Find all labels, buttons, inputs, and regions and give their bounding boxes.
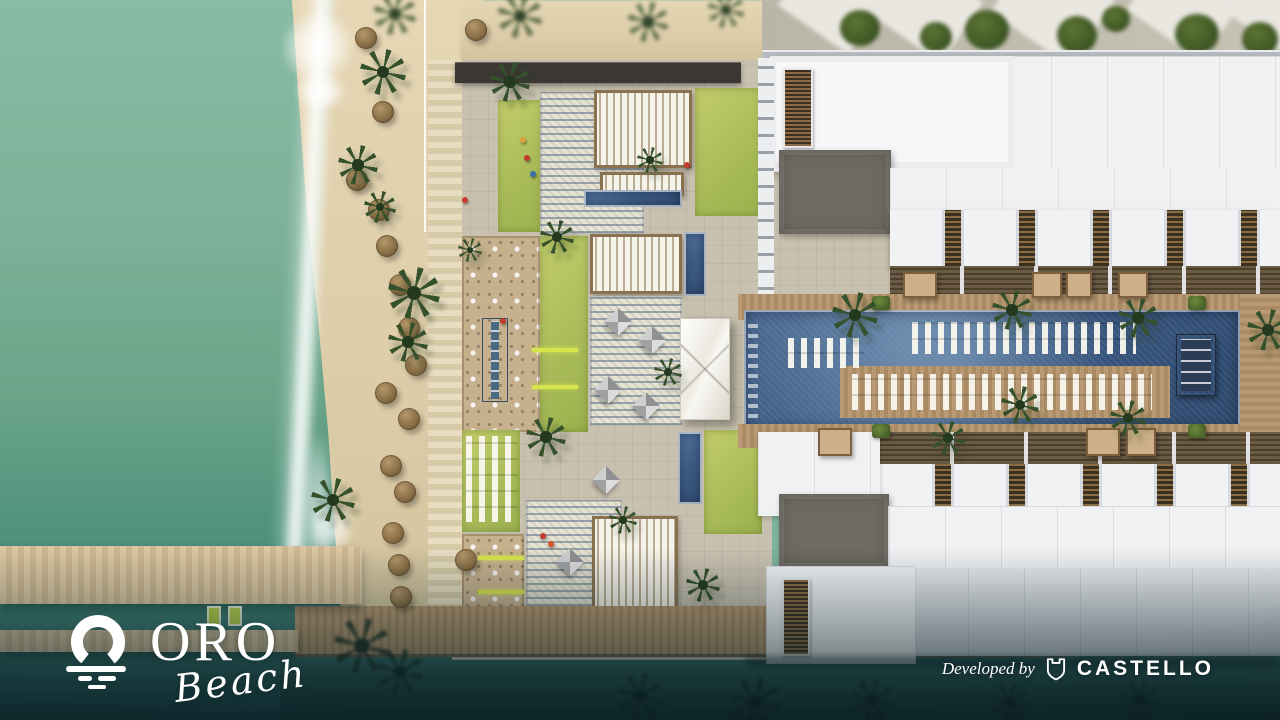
palm-tree [1122, 682, 1158, 718]
games-table-strip [532, 348, 578, 352]
beach-umbrella [382, 522, 404, 544]
palm-tree [338, 145, 378, 185]
lower-gray-roof-block [779, 494, 889, 568]
beach-umbrella [390, 586, 412, 608]
upper-chalet-row [890, 210, 1280, 268]
lower-building-shadow-slab [912, 568, 1280, 656]
palm-tree [931, 421, 965, 455]
palm-tree [730, 677, 780, 720]
developed-by-label: Developed by [942, 659, 1035, 679]
sun-lounger-row [788, 338, 864, 368]
upper-courtyard-lawn-right [695, 88, 761, 216]
accent-parasol [684, 162, 690, 168]
palm-tree [1001, 386, 1039, 424]
developer-credit: Developed by CASTELLO [942, 656, 1214, 682]
beach-umbrella [455, 549, 477, 571]
context-tree [920, 22, 952, 52]
pool-cabana [1118, 272, 1148, 298]
beach-umbrella [355, 27, 377, 49]
context-tree [1175, 14, 1219, 54]
palm-tree [609, 506, 637, 534]
palm-tree [832, 292, 878, 338]
beach-umbrella [376, 235, 398, 257]
palm-tree [991, 683, 1029, 720]
palm-tree [637, 147, 663, 173]
context-tree [1057, 16, 1097, 54]
wave-wash [294, 70, 348, 112]
upper-west-wing [758, 58, 774, 304]
beach-resort-aerial-render: ORO Beach Developed by CASTELLO [0, 0, 1280, 720]
palm-tree [388, 267, 440, 319]
palm-tree [388, 322, 428, 362]
sun-lounger-row [912, 322, 1136, 354]
planter-hedge [872, 424, 890, 438]
sun-over-waves-icon [58, 610, 138, 694]
games-table-strip [478, 556, 524, 560]
pool-entry-steps [748, 322, 758, 418]
beach-umbrella [380, 455, 402, 477]
beach-umbrella [388, 554, 410, 576]
sun-lounger-row [466, 436, 518, 522]
lower-plunge-pool [678, 432, 702, 504]
accent-parasol [548, 541, 554, 547]
lower-roof-louver-vent [782, 578, 810, 656]
upper-roof-louver-vent [783, 68, 813, 148]
top-context-roofs [762, 0, 1280, 58]
upper-courtyard-lawn-left [498, 100, 542, 232]
upper-gray-roof-block [779, 150, 891, 234]
tensile-shade-canopy [680, 318, 730, 420]
beach-umbrella [375, 382, 397, 404]
palm-tree [311, 478, 355, 522]
central-plunge-pool [684, 232, 706, 296]
accent-parasol [540, 533, 546, 539]
beach-umbrella [398, 408, 420, 430]
palm-tree [686, 568, 720, 602]
pool-cabana [1032, 272, 1062, 298]
palm-tree [1110, 400, 1146, 436]
palm-tree [628, 2, 668, 42]
palm-tree [360, 49, 406, 95]
wooden-pier [0, 546, 362, 604]
developer-name: CASTELLO [1077, 657, 1214, 681]
central-pergola [590, 234, 682, 294]
boardwalk-fence-line [424, 0, 426, 232]
pool-cabana [818, 428, 852, 456]
pool-bar-kiosk [1176, 334, 1216, 396]
castello-shield-icon [1045, 656, 1067, 682]
palm-tree [458, 238, 482, 262]
planter-hedge [1188, 296, 1206, 310]
oro-beach-logo: ORO Beach [58, 606, 338, 714]
palm-tree [617, 673, 663, 719]
palm-tree [490, 62, 530, 102]
upper-chalet-white-band [890, 168, 1280, 212]
palm-tree [851, 679, 893, 720]
context-tree [965, 10, 1009, 50]
accent-parasol [500, 318, 506, 324]
palm-tree [540, 220, 574, 254]
pool-cabana [1066, 272, 1092, 298]
palm-tree [654, 358, 682, 386]
planter-hedge [1188, 424, 1206, 438]
upper-lap-pool [584, 190, 682, 207]
games-table-strip [532, 385, 578, 389]
palm-tree [526, 417, 566, 457]
pool-cabana [903, 272, 937, 298]
accent-parasol [462, 197, 468, 203]
pool-cabana [1086, 428, 1120, 456]
context-tree [840, 10, 880, 46]
beach-umbrella [372, 101, 394, 123]
palm-tree [377, 649, 423, 695]
beach-umbrella [394, 481, 416, 503]
beach-umbrella [465, 19, 487, 41]
accent-parasol [530, 171, 536, 177]
beach-bar-counter [482, 318, 508, 402]
palm-tree [1118, 298, 1158, 338]
accent-parasol [524, 155, 530, 161]
palm-tree [992, 290, 1032, 330]
context-tree [1102, 6, 1130, 32]
palm-tree [364, 191, 396, 223]
accent-parasol [520, 137, 526, 143]
games-table-strip [478, 590, 524, 594]
central-lawn-strip [540, 236, 588, 432]
